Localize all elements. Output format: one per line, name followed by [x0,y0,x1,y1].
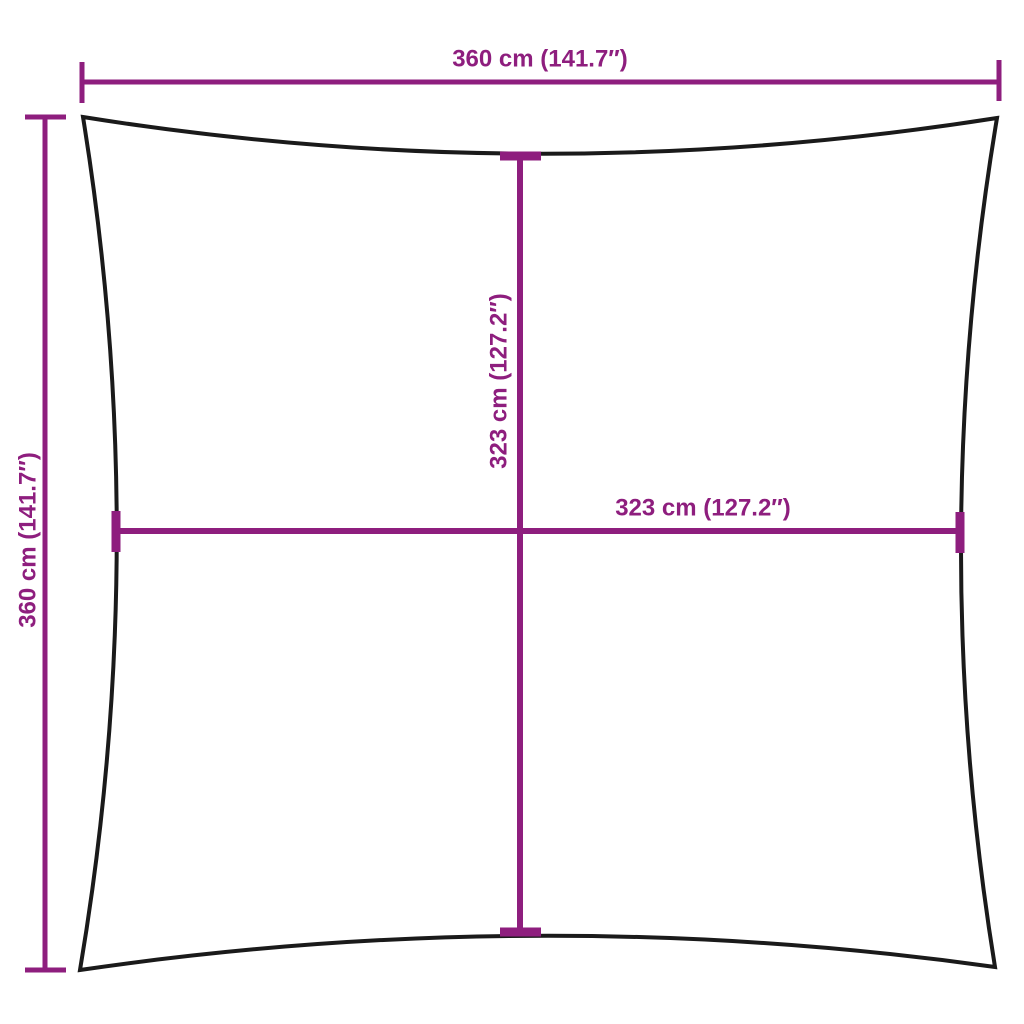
left-height-dimension: 360 cm (141.7″) [15,117,67,970]
inner-height-dimension-label: 323 cm (127.2″) [486,293,513,469]
inner-width-dimension-label: 323 cm (127.2″) [615,495,791,522]
sail-outline [80,117,997,970]
shade-sail-dimension-diagram: 360 cm (141.7″) 360 cm (141.7″) 323 cm (… [0,0,1024,1024]
left-height-dimension-label: 360 cm (141.7″) [15,452,42,628]
top-width-dimension-label: 360 cm (141.7″) [452,46,628,73]
top-width-dimension: 360 cm (141.7″) [82,46,999,104]
diagram-stage: 360 cm (141.7″) 360 cm (141.7″) 323 cm (… [0,0,1024,1024]
